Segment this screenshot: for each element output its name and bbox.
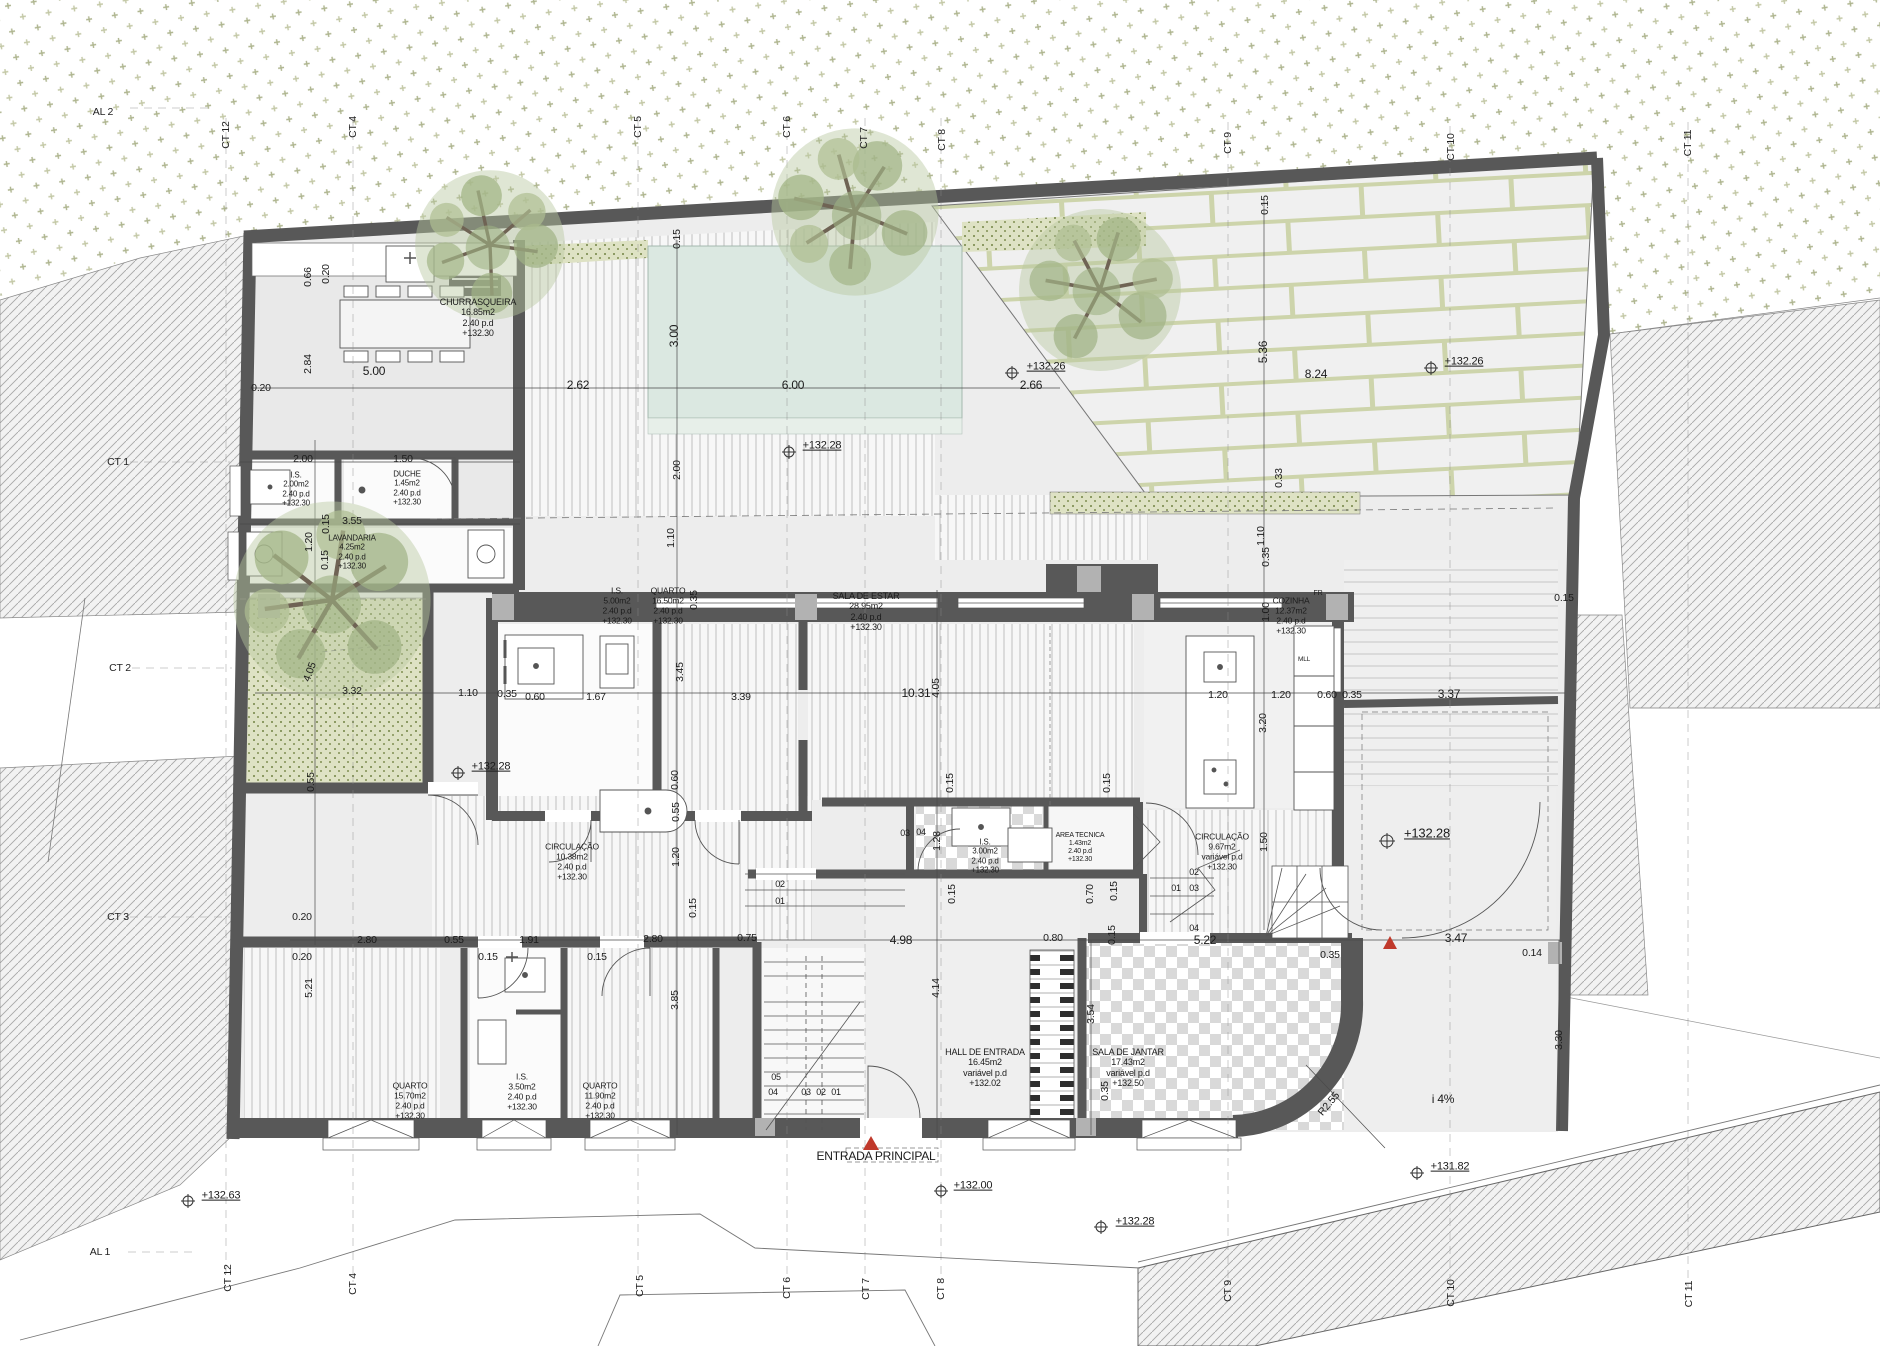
dim-label-55: 0.15 [1108,881,1120,901]
axis-ct-9-top: CT 9 [1222,132,1234,154]
dim-label-54: 0.70 [1084,884,1096,904]
dim-label-39: 3.37 [1438,688,1461,702]
axis-ct-7-top: CT 7 [858,127,870,149]
axis-ct-12-top: CT 12 [220,121,232,148]
room-lavandaria: LAVANDARIA 4.25m2 2.40 p.d +132.30 [328,533,376,570]
level-132-28-bottom: +132.28 [1116,1216,1155,1229]
room-area-tecnica: AREA TECNICA 1.43m2 2.40 p.d +132.30 [1056,832,1105,864]
level-132-63: +132.63 [202,1190,241,1203]
dim-label-53: 0.15 [946,884,958,904]
dim-label-37: 0.60 [1317,689,1337,701]
dim-label-3: 5.00 [363,365,386,379]
dim-label-6: 1.50 [393,453,413,465]
fridge-label: FR [1314,590,1323,598]
dim-label-52: 1.28 [931,831,943,851]
dishwasher-label: MLL [1298,656,1310,664]
dim-label-43: 0.15 [944,773,956,793]
dim-label-73: 0.35 [1320,949,1340,961]
axis-ct-11-bot: CT 11 [1683,1281,1695,1308]
axis-ct-4-top: CT 4 [347,116,359,138]
level-132-28-terrace: +132.28 [803,440,842,453]
room-cozinha: COZINHA 12.37m2 2.40 p.d +132.30 [1273,596,1310,635]
floor-plan-stage: AL 2CT 12CT 4CT 5CT 6CT 7CT 8CT 9CT 10CT… [0,0,1880,1346]
dim-label-74: 3.47 [1445,932,1468,946]
dim-label-56: 0.15 [1106,925,1118,945]
dim-label-48: 0.60 [669,770,681,790]
axis-ct-6-top: CT 6 [781,116,793,138]
dim-label-46: 0.20 [292,911,312,923]
dim-label-75: 0.14 [1522,947,1542,959]
dim-label-19: 0.15 [1259,195,1271,215]
stair-label-4: 01 [831,1087,841,1097]
axis-ct-5-top: CT 5 [632,116,644,138]
stair-label-9: 02 [1189,867,1199,877]
room-is-500: I.S. 5.00m2 2.40 p.d +132.30 [602,586,632,625]
room-circulacao-1038: CIRCULAÇÃO 10.38m2 2.40 p.d +132.30 [545,842,599,881]
dim-label-26: 1.10 [458,687,478,699]
dim-label-71: 0.35 [1099,1081,1111,1101]
room-sala-de-jantar: SALA DE JANTAR 17.43m2 variável p.d +132… [1092,1047,1164,1089]
dim-label-36: 1.20 [1271,689,1291,701]
dim-label-28: 0.60 [525,691,545,703]
room-is-350: I.S. 3.50m2 2.40 p.d +132.30 [507,1072,537,1111]
stair-label-7: 03 [900,828,910,838]
room-quarto-1650: QUARTO 16.50m2 2.40 p.d +132.30 [651,586,686,625]
axis-ct-9-bot: CT 9 [1222,1280,1234,1302]
dim-label-72: 5.22 [1194,934,1217,948]
dim-label-64: 2.80 [643,933,663,945]
dim-label-65: 0.75 [737,932,757,944]
dim-label-7: 0.15 [320,514,332,534]
axis-ct-8-top: CT 8 [936,129,948,151]
slope-label: i 4% [1432,1093,1455,1107]
level-132-28-entry: +132.28 [1404,825,1450,840]
dim-label-21: 1.10 [665,528,677,548]
level-132-28-courtyard: +132.28 [472,761,511,774]
dim-label-11: 2.62 [567,379,590,393]
dim-label-10: 0.15 [319,550,331,570]
axis-ct-7-bot: CT 7 [860,1278,872,1300]
dim-label-69: 4.14 [930,978,942,998]
entrance-label: ENTRADA PRINCIPAL [816,1150,935,1164]
room-churrasqueira: CHURRASQUEIRA 16.85m2 2.40 p.d +132.30 [440,297,516,339]
dim-label-29: 1.67 [586,691,606,703]
dim-label-59: 2.80 [357,934,377,946]
room-sala-de-estar: SALA DE ESTAR 28.95m2 2.40 p.d +132.30 [833,591,900,633]
dim-label-61: 1.91 [519,934,539,946]
dim-label-20: 0.33 [1273,468,1285,488]
room-duche: DUCHE 1.45m2 2.40 p.d +132.30 [393,469,421,506]
dim-label-12: 6.00 [782,379,805,393]
room-quarto-1570: QUARTO 15.70m2 2.40 p.d +132.30 [393,1081,428,1120]
level-132-00: +132.00 [954,1180,993,1193]
axis-ct-11-top: CT 11 [1682,130,1694,157]
dim-label-23: 0.35 [1260,547,1272,567]
stair-label-12: 04 [1189,923,1199,933]
stair-label-8: 04 [916,827,926,837]
dim-label-51: 0.15 [687,898,699,918]
stair-label-0: 05 [771,1072,781,1082]
dim-label-42: 3.20 [1257,713,1269,733]
dim-label-57: 1.50 [1258,832,1270,852]
dim-label-50: 1.20 [670,847,682,867]
dim-label-16: 2.00 [671,460,683,480]
axis-ct-10-bot: CT 10 [1445,1279,1457,1306]
room-circulacao-967: CIRCULAÇÃO 9.67m2 variável p.d +132.30 [1195,832,1249,871]
axis-ct-10-top: CT 10 [1445,133,1457,160]
dim-label-70: 3.54 [1085,1004,1097,1024]
dim-label-77: R2.55 [1316,1090,1343,1119]
axis-ct-1: CT 1 [107,456,129,468]
axis-al-1: AL 1 [90,1246,110,1258]
dim-label-62: 0.15 [478,951,498,963]
level-131-82: +131.82 [1431,1161,1470,1174]
axis-ct-5-bot: CT 5 [634,1275,646,1297]
dim-label-9: 1.20 [303,532,315,552]
dim-label-35: 1.20 [1208,689,1228,701]
dim-label-14: 3.00 [668,325,682,348]
dim-label-32: 0.35 [688,590,700,610]
dim-label-34: 4.05 [930,678,942,698]
dim-label-8: 3.55 [342,515,362,527]
level-132-26-garden: +132.26 [1445,356,1484,369]
room-is-200: I.S. 2.00m2 2.40 p.d +132.30 [282,470,310,507]
dim-label-2: 2.84 [302,354,314,374]
axis-ct-8-bot: CT 8 [935,1278,947,1300]
axis-ct-6-bot: CT 6 [781,1277,793,1299]
dim-label-22: 1.10 [1255,526,1267,546]
axis-ct-3: CT 3 [107,911,129,923]
stair-label-10: 01 [1171,883,1181,893]
dim-label-15: 0.15 [671,229,683,249]
axis-ct-2: CT 2 [109,662,131,674]
stair-label-2: 03 [801,1087,811,1097]
labels-layer: AL 2CT 12CT 4CT 5CT 6CT 7CT 8CT 9CT 10CT… [0,0,1880,1346]
room-hall-de-entrada: HALL DE ENTRADA 16.45m2 variável p.d +13… [945,1047,1025,1089]
room-is-300: I.S. 3.00m2 2.40 p.d +132.30 [971,837,999,874]
dim-label-5: 2.00 [293,453,313,465]
dim-label-49: 0.55 [670,802,682,822]
dim-label-25: 3.32 [342,685,362,697]
stair-label-6: 01 [775,896,785,906]
dim-label-66: 3.85 [669,990,681,1010]
stair-label-3: 02 [816,1087,826,1097]
dim-label-30: 3.39 [731,691,751,703]
dim-label-0: 0.66 [302,267,314,287]
axis-ct-12-bot: CT 12 [222,1264,234,1291]
axis-ct-4-bot: CT 4 [347,1273,359,1295]
dim-label-38: 0.35 [1342,689,1362,701]
stair-label-1: 04 [768,1087,778,1097]
dim-label-40: 0.15 [1554,592,1574,604]
dim-label-44: 0.15 [1101,773,1113,793]
level-132-26-pool: +132.26 [1027,361,1066,374]
dim-label-67: 4.98 [890,934,913,948]
dim-label-17: 5.36 [1257,341,1271,364]
room-quarto-1190: QUARTO 11.90m2 2.40 p.d +132.30 [583,1081,618,1120]
dim-label-4: 0.20 [251,382,271,394]
stair-label-11: 03 [1189,883,1199,893]
dim-label-60: 0.55 [444,934,464,946]
dim-label-45: 0.55 [305,772,317,792]
dim-label-58: 0.20 [292,951,312,963]
dim-label-1: 0.20 [320,264,332,284]
dim-label-31: 3.45 [674,662,686,682]
dim-label-27: 0.35 [497,688,517,700]
dim-label-47: 5.21 [303,978,315,998]
dim-label-63: 0.15 [587,951,607,963]
dim-label-18: 8.24 [1305,368,1328,382]
stair-label-5: 02 [775,879,785,889]
dim-label-24: 4.05 [301,661,319,684]
dim-label-13: 2.66 [1020,379,1043,393]
axis-al-2: AL 2 [93,106,113,118]
dim-label-68: 0.80 [1043,932,1063,944]
dim-label-76: 3.30 [1553,1030,1565,1050]
dim-label-41: 1.00 [1260,602,1272,622]
dim-label-33: 10.31 [901,687,930,701]
